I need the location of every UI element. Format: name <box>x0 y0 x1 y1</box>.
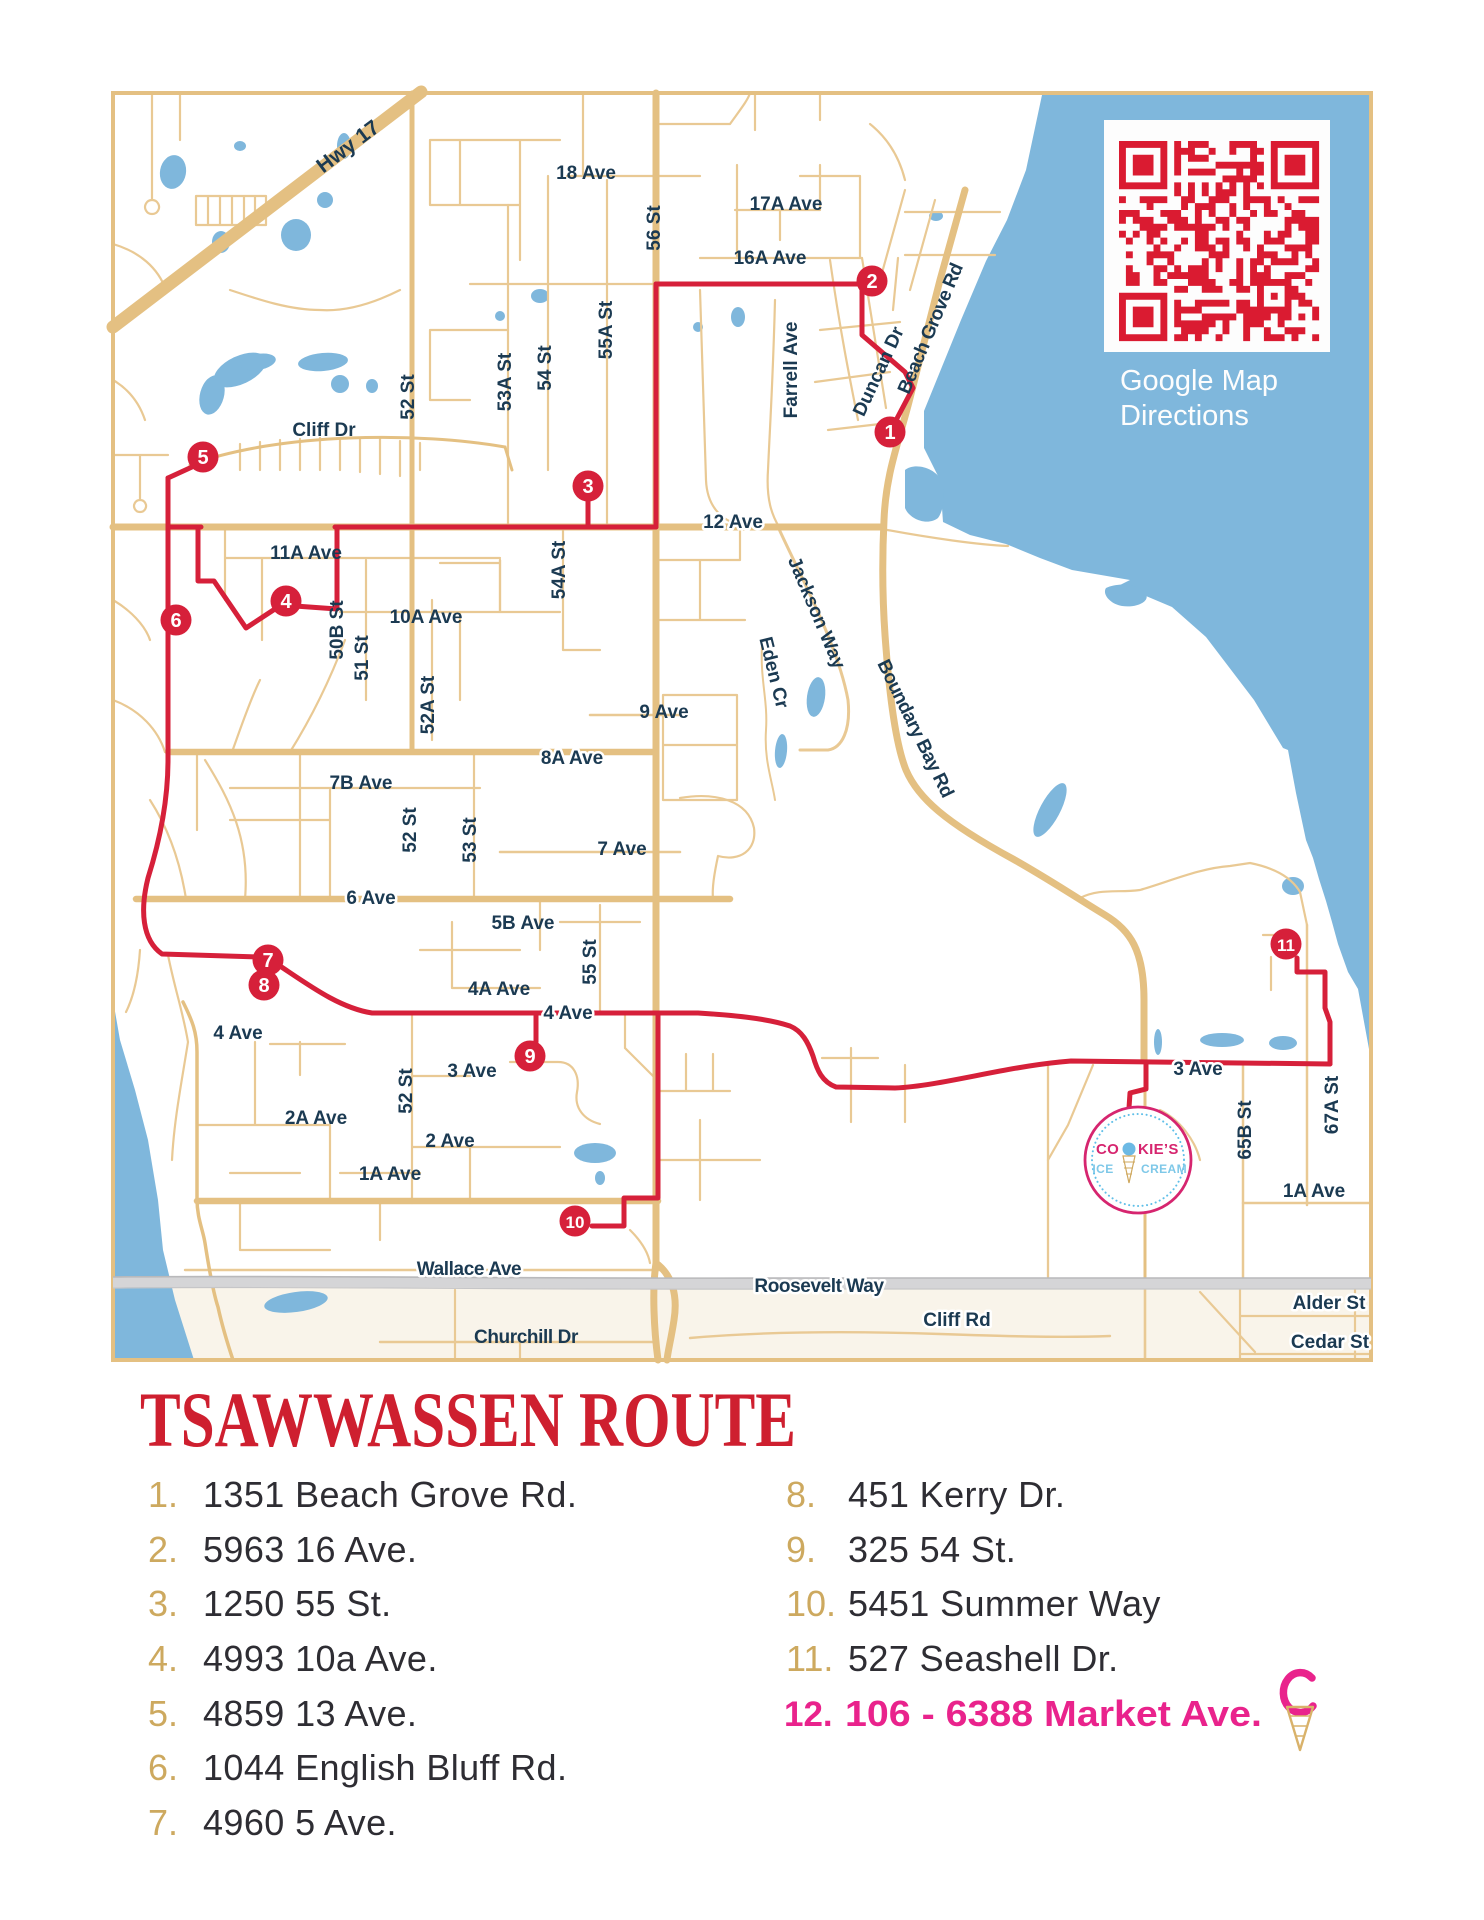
svg-text:4960 5 Ave.: 4960 5 Ave. <box>203 1802 397 1843</box>
svg-text:2 Ave: 2 Ave <box>425 1131 474 1152</box>
svg-text:4 Ave: 4 Ave <box>213 1023 262 1044</box>
svg-text:1A Ave: 1A Ave <box>1283 1181 1345 1202</box>
svg-text:10.: 10. <box>786 1583 836 1624</box>
svg-text:5.: 5. <box>148 1693 178 1734</box>
svg-text:Wallace Ave: Wallace Ave <box>417 1259 521 1280</box>
svg-text:2A Ave: 2A Ave <box>285 1108 347 1129</box>
svg-text:1351 Beach Grove Rd.: 1351 Beach Grove Rd. <box>203 1474 577 1515</box>
svg-text:67A St: 67A St <box>1322 1075 1343 1134</box>
svg-text:7B Ave: 7B Ave <box>329 773 392 794</box>
svg-text:54A St: 54A St <box>549 540 570 599</box>
svg-text:5B Ave: 5B Ave <box>491 913 554 934</box>
svg-text:3 Ave: 3 Ave <box>1173 1059 1222 1080</box>
svg-text:451 Kerry Dr.: 451 Kerry Dr. <box>848 1474 1065 1515</box>
svg-text:12 Ave: 12 Ave <box>703 512 763 533</box>
svg-text:5451 Summer Way: 5451 Summer Way <box>848 1583 1161 1624</box>
svg-text:CO: CO <box>1096 1141 1119 1158</box>
svg-text:17A Ave: 17A Ave <box>750 194 823 215</box>
svg-text:4859 13 Ave.: 4859 13 Ave. <box>203 1693 417 1734</box>
svg-text:4 Ave: 4 Ave <box>543 1003 592 1024</box>
svg-text:Cliff Rd: Cliff Rd <box>923 1310 991 1331</box>
svg-text:4: 4 <box>280 591 292 613</box>
svg-text:53A St: 53A St <box>495 352 516 411</box>
svg-text:4.: 4. <box>148 1638 178 1679</box>
svg-text:65B St: 65B St <box>1235 1100 1256 1160</box>
svg-text:Farrell Ave: Farrell Ave <box>781 322 802 419</box>
svg-text:527 Seashell Dr.: 527 Seashell Dr. <box>848 1638 1119 1679</box>
svg-text:52 St: 52 St <box>400 807 421 853</box>
svg-text:1A Ave: 1A Ave <box>359 1164 421 1185</box>
svg-text:8.: 8. <box>786 1474 816 1515</box>
svg-text:16A Ave: 16A Ave <box>734 248 807 269</box>
svg-text:2.: 2. <box>148 1529 178 1570</box>
svg-text:3.: 3. <box>148 1583 178 1624</box>
svg-text:8: 8 <box>258 975 269 997</box>
svg-text:Churchill Dr: Churchill Dr <box>474 1327 579 1348</box>
svg-text:1.: 1. <box>148 1474 178 1515</box>
svg-text:10: 10 <box>566 1213 585 1232</box>
svg-text:11.: 11. <box>786 1638 833 1679</box>
svg-text:1: 1 <box>884 422 895 444</box>
svg-text:1044 English Bluff Rd.: 1044 English Bluff Rd. <box>203 1747 567 1788</box>
svg-text:4A Ave: 4A Ave <box>468 979 530 1000</box>
svg-text:50B St: 50B St <box>327 600 348 660</box>
svg-text:325 54 St.: 325 54 St. <box>848 1529 1016 1570</box>
svg-text:6 Ave: 6 Ave <box>346 888 395 909</box>
svg-text:51 St: 51 St <box>352 635 373 681</box>
svg-text:ICE: ICE <box>1092 1162 1113 1176</box>
svg-text:KIE’S: KIE’S <box>1138 1141 1179 1158</box>
svg-text:2: 2 <box>866 271 877 293</box>
svg-text:Cedar St: Cedar St <box>1291 1332 1370 1353</box>
svg-text:9 Ave: 9 Ave <box>639 702 688 723</box>
svg-text:Google Map: Google Map <box>1120 365 1278 397</box>
svg-text:6: 6 <box>170 610 181 632</box>
svg-text:4993 10a Ave.: 4993 10a Ave. <box>203 1638 438 1679</box>
svg-text:8A Ave: 8A Ave <box>541 748 603 769</box>
svg-text:52 St: 52 St <box>398 374 419 420</box>
svg-text:TSAWWASSEN ROUTE: TSAWWASSEN ROUTE <box>140 1376 796 1463</box>
svg-text:7 Ave: 7 Ave <box>597 839 646 860</box>
svg-text:Alder St: Alder St <box>1293 1293 1367 1314</box>
svg-text:Directions: Directions <box>1120 400 1249 432</box>
svg-text:1250 55 St.: 1250 55 St. <box>203 1583 392 1624</box>
svg-text:12.: 12. <box>784 1695 833 1734</box>
svg-text:7: 7 <box>262 950 273 972</box>
svg-text:3 Ave: 3 Ave <box>447 1061 496 1082</box>
svg-text:9.: 9. <box>786 1529 816 1570</box>
svg-text:10A Ave: 10A Ave <box>390 607 463 628</box>
svg-text:7.: 7. <box>148 1802 178 1843</box>
svg-text:3: 3 <box>582 476 593 498</box>
svg-text:11: 11 <box>1277 936 1295 955</box>
svg-text:Cliff Dr: Cliff Dr <box>292 420 356 441</box>
svg-text:18 Ave: 18 Ave <box>556 163 616 184</box>
svg-text:5: 5 <box>197 447 208 469</box>
svg-text:55 St: 55 St <box>580 939 601 985</box>
svg-text:54 St: 54 St <box>535 345 556 391</box>
svg-text:55A St: 55A St <box>596 300 617 359</box>
svg-text:Roosevelt Way: Roosevelt Way <box>754 1276 884 1297</box>
svg-text:5963 16 Ave.: 5963 16 Ave. <box>203 1529 417 1570</box>
svg-text:53 St: 53 St <box>460 817 481 863</box>
svg-text:9: 9 <box>524 1046 535 1068</box>
svg-text:CREAM: CREAM <box>1141 1162 1187 1176</box>
svg-text:6.: 6. <box>148 1747 178 1788</box>
svg-text:11A Ave: 11A Ave <box>270 543 342 564</box>
svg-text:106 - 6388 Market Ave.: 106 - 6388 Market Ave. <box>845 1693 1262 1734</box>
svg-text:56 St: 56 St <box>644 205 665 251</box>
svg-text:52A St: 52A St <box>418 675 439 734</box>
svg-text:52 St: 52 St <box>396 1068 417 1114</box>
